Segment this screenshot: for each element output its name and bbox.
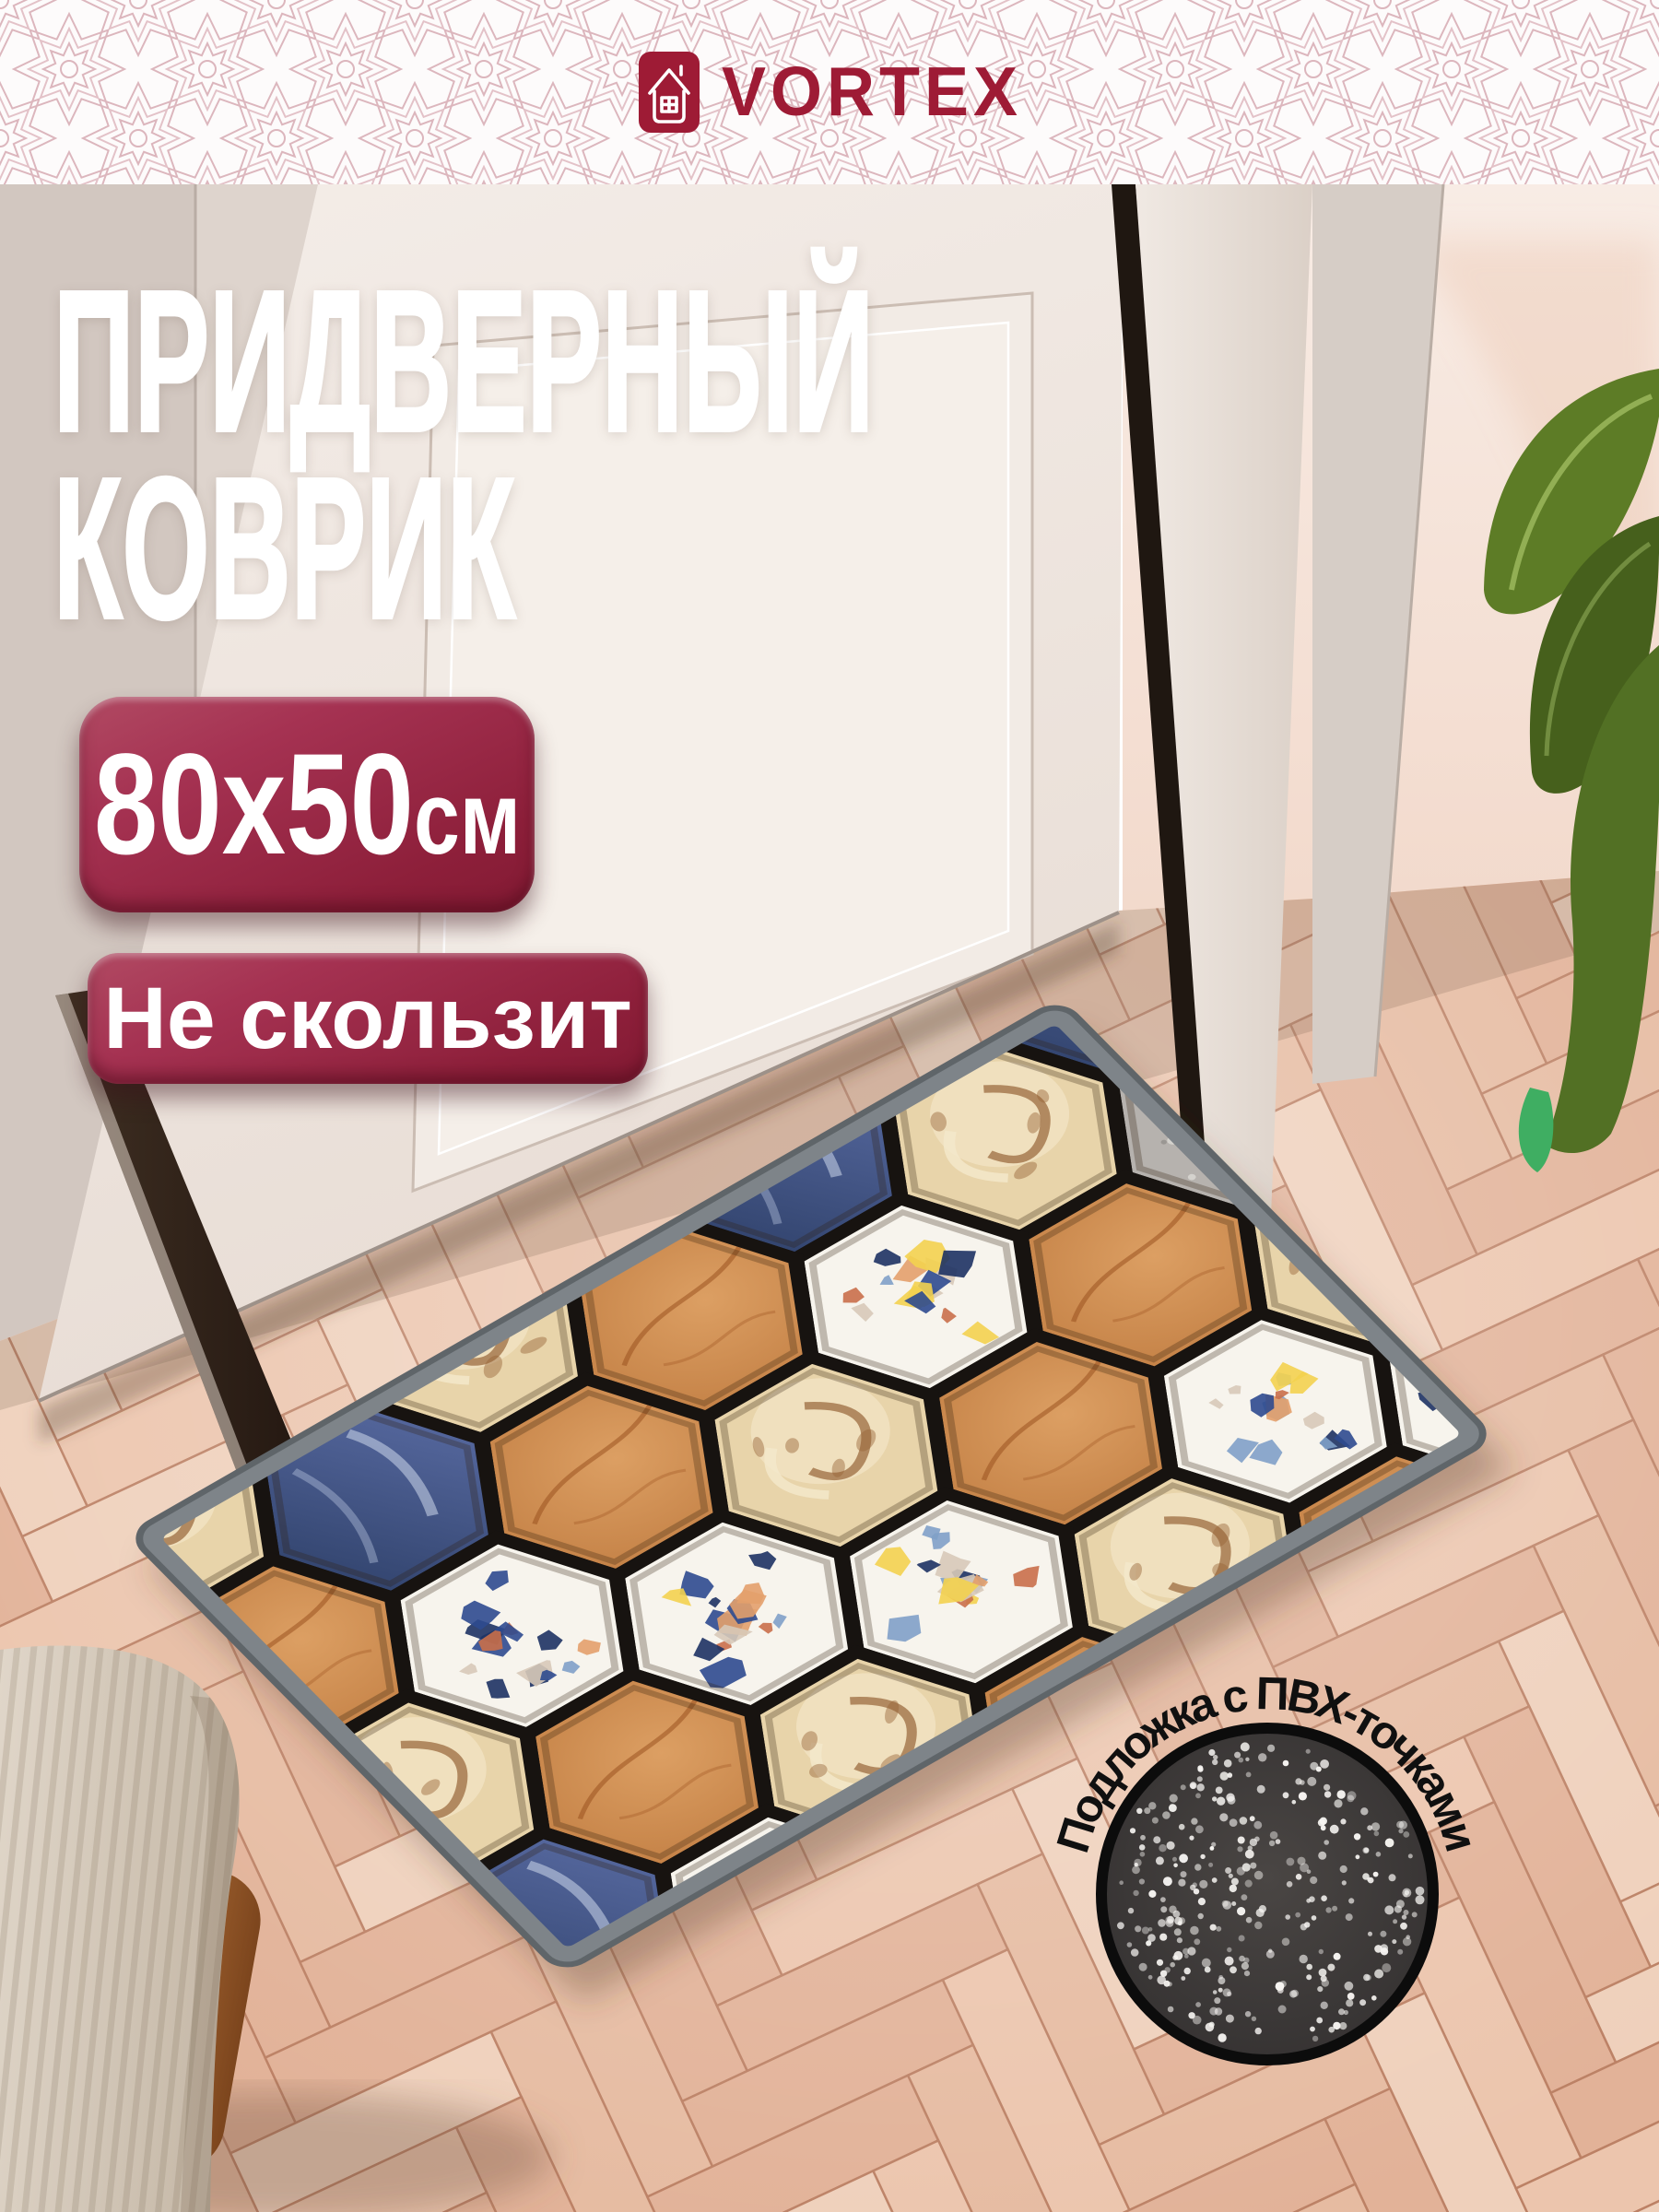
title-line1: ПРИДВЕРНЫЙ	[53, 269, 874, 456]
logo-row: VORTEX	[0, 0, 1659, 184]
brand-name: VORTEX	[722, 53, 1022, 132]
product-card: Подложка с ПВХ-точками	[0, 0, 1659, 2212]
title-line2: КОВРИК	[53, 456, 874, 643]
feature-badge: Не скользит	[88, 953, 648, 1084]
armchair	[0, 1645, 240, 2212]
page-title: ПРИДВЕРНЫЙ КОВРИК	[53, 269, 874, 642]
size-badge: 80x50см	[79, 697, 535, 912]
size-value: 80x50см	[93, 723, 520, 888]
brand-header: VORTEX	[0, 0, 1659, 184]
house-icon	[637, 50, 701, 135]
size-unit: см	[413, 760, 520, 876]
size-number: 80x50	[93, 724, 413, 885]
